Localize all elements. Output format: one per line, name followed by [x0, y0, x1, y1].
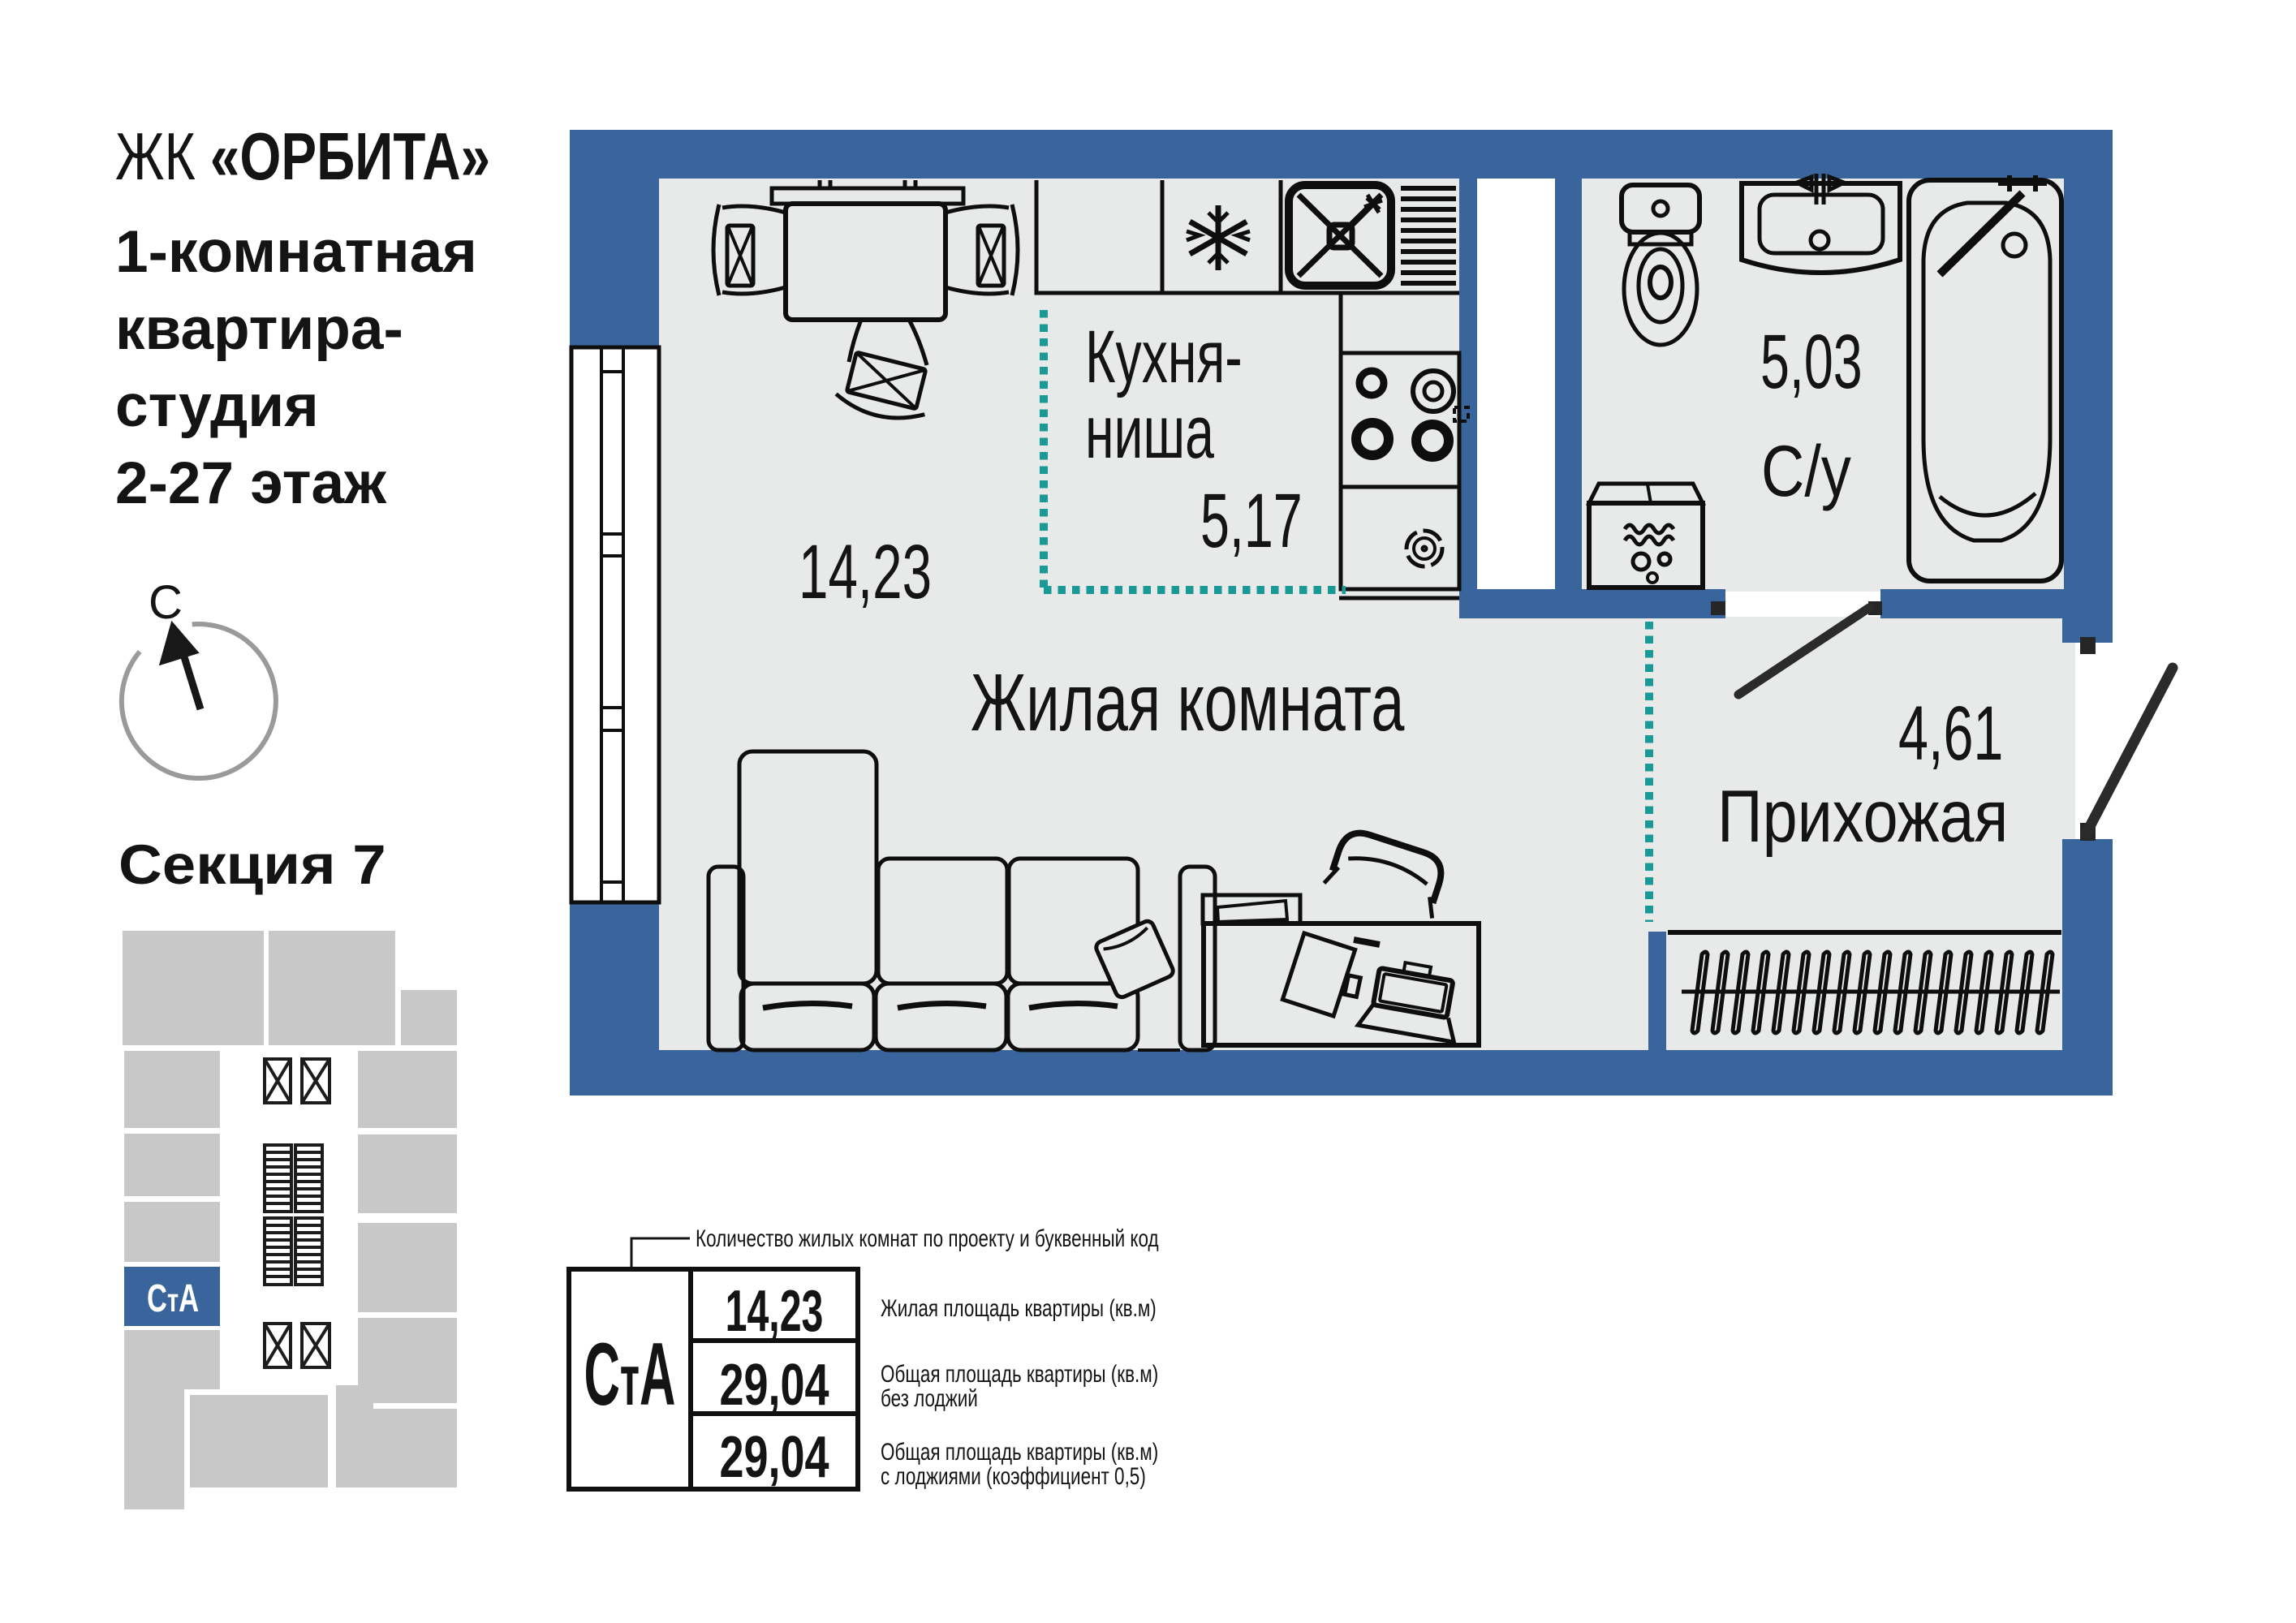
svg-text:5,03: 5,03 — [1760, 319, 1863, 405]
svg-text:1-комнатная: 1-комнатная — [115, 219, 477, 285]
svg-text:квартира-: квартира- — [115, 296, 403, 362]
svg-text:Жилая комната: Жилая комната — [971, 657, 1404, 748]
svg-text:с лоджиями (коэффициент 0,5): с лоджиями (коэффициент 0,5) — [881, 1462, 1146, 1490]
svg-text:ЖК «ОРБИТА»: ЖК «ОРБИТА» — [115, 118, 490, 194]
svg-text:29,04: 29,04 — [719, 1353, 829, 1418]
svg-text:14,23: 14,23 — [799, 529, 932, 615]
svg-text:5,17: 5,17 — [1200, 478, 1303, 564]
svg-text:29,04: 29,04 — [719, 1425, 829, 1490]
svg-text:ниша: ниша — [1085, 390, 1215, 474]
svg-text:Общая площадь квартиры (кв.м): Общая площадь квартиры (кв.м) — [881, 1438, 1158, 1466]
svg-text:СтА: СтА — [147, 1276, 199, 1319]
svg-text:С: С — [149, 576, 183, 629]
svg-text:2-27 этаж: 2-27 этаж — [115, 450, 387, 516]
svg-text:14,23: 14,23 — [726, 1278, 824, 1343]
svg-text:Кухня-: Кухня- — [1085, 315, 1243, 398]
svg-text:Прихожая: Прихожая — [1717, 775, 2008, 857]
svg-text:4,61: 4,61 — [1898, 691, 2003, 776]
svg-text:Секция 7: Секция 7 — [118, 834, 386, 897]
svg-text:Количество жилых комнат по про: Количество жилых комнат по проекту и бук… — [696, 1225, 1159, 1252]
svg-text:С/у: С/у — [1761, 432, 1851, 512]
svg-text:без лоджий: без лоджий — [881, 1384, 978, 1412]
svg-text:студия: студия — [115, 373, 319, 439]
svg-text:Общая площадь квартиры (кв.м): Общая площадь квартиры (кв.м) — [881, 1360, 1158, 1388]
svg-text:Жилая площадь квартиры (кв.м): Жилая площадь квартиры (кв.м) — [881, 1294, 1157, 1322]
